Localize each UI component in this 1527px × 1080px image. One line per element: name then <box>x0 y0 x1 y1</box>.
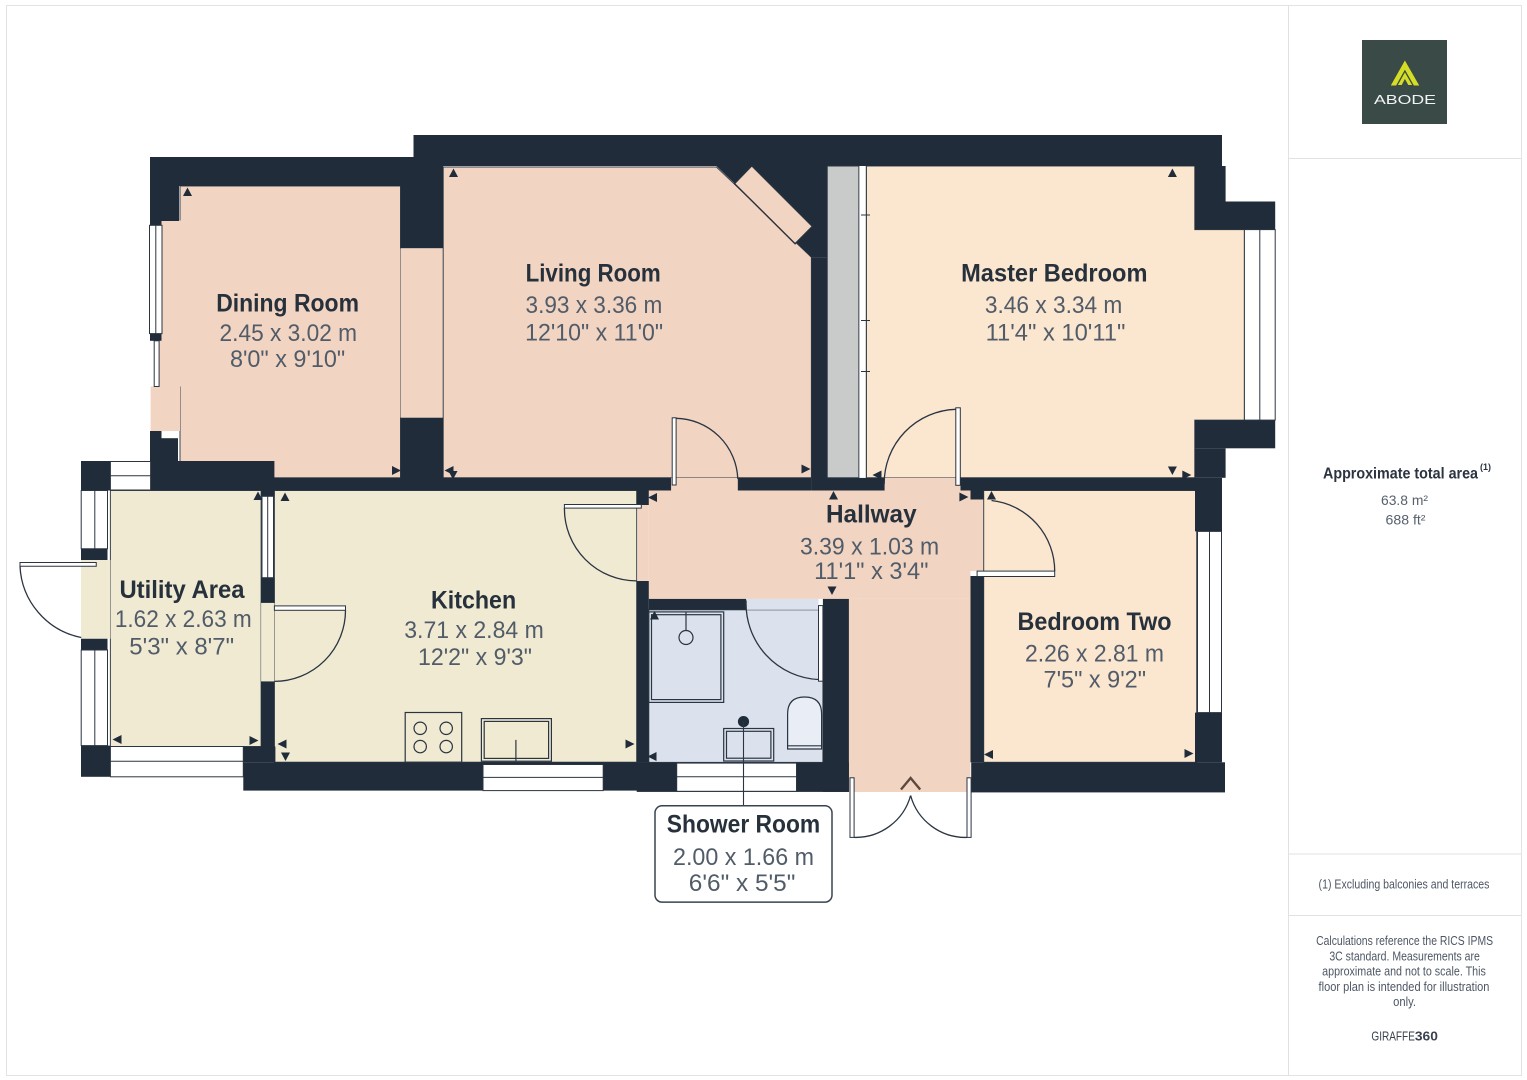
svg-text:Approximate total area: Approximate total area <box>1323 466 1478 483</box>
svg-text:Calculations reference the RIC: Calculations reference the RICS IPMS <box>1316 933 1493 948</box>
svg-text:2.00 x 1.66 m: 2.00 x 1.66 m <box>673 844 814 871</box>
svg-text:Dining Room: Dining Room <box>216 290 359 318</box>
svg-text:Utility Area: Utility Area <box>119 576 245 604</box>
svg-text:11'4" x 10'11": 11'4" x 10'11" <box>986 319 1126 346</box>
svg-text:8'0" x 9'10": 8'0" x 9'10" <box>230 346 345 373</box>
svg-text:(1) Excluding balconies and te: (1) Excluding balconies and terraces <box>1319 877 1490 892</box>
svg-text:3C standard. Measurements are: 3C standard. Measurements are <box>1329 948 1480 963</box>
svg-text:Bedroom Two: Bedroom Two <box>1017 608 1171 636</box>
svg-text:GIRAFFE: GIRAFFE <box>1371 1028 1415 1043</box>
svg-text:5'3" x 8'7": 5'3" x 8'7" <box>129 633 234 660</box>
svg-text:3.93 x 3.36 m: 3.93 x 3.36 m <box>526 292 663 319</box>
svg-text:360: 360 <box>1415 1028 1438 1043</box>
svg-text:688 ft²: 688 ft² <box>1386 512 1426 528</box>
svg-text:ABODE: ABODE <box>1374 92 1436 107</box>
svg-text:3.71 x 2.84 m: 3.71 x 2.84 m <box>404 617 544 644</box>
svg-text:Shower Room: Shower Room <box>667 811 820 839</box>
svg-text:2.26 x 2.81 m: 2.26 x 2.81 m <box>1025 641 1164 668</box>
svg-text:6'6" x 5'5": 6'6" x 5'5" <box>689 870 796 897</box>
svg-text:12'2" x 9'3": 12'2" x 9'3" <box>418 644 532 671</box>
svg-text:Master Bedroom: Master Bedroom <box>961 259 1147 287</box>
svg-text:11'1" x 3'4": 11'1" x 3'4" <box>814 558 928 585</box>
svg-text:(1): (1) <box>1480 462 1491 472</box>
svg-text:63.8 m²: 63.8 m² <box>1381 492 1428 508</box>
svg-text:approximate and not to scale.: approximate and not to scale. This <box>1322 964 1486 979</box>
svg-text:floor plan is intended for ill: floor plan is intended for illustration <box>1319 979 1490 994</box>
svg-text:only.: only. <box>1393 994 1416 1009</box>
svg-text:3.46 x 3.34 m: 3.46 x 3.34 m <box>985 292 1123 319</box>
svg-text:Kitchen: Kitchen <box>431 587 516 615</box>
svg-text:Hallway: Hallway <box>826 500 917 528</box>
svg-text:Living Room: Living Room <box>526 259 661 287</box>
svg-text:3.39 x 1.03 m: 3.39 x 1.03 m <box>800 533 939 560</box>
svg-text:1.62 x 2.63 m: 1.62 x 2.63 m <box>115 606 252 633</box>
svg-text:2.45 x 3.02 m: 2.45 x 3.02 m <box>220 320 358 347</box>
svg-text:12'10" x 11'0": 12'10" x 11'0" <box>525 319 663 346</box>
svg-text:7'5" x 9'2": 7'5" x 9'2" <box>1044 667 1147 694</box>
